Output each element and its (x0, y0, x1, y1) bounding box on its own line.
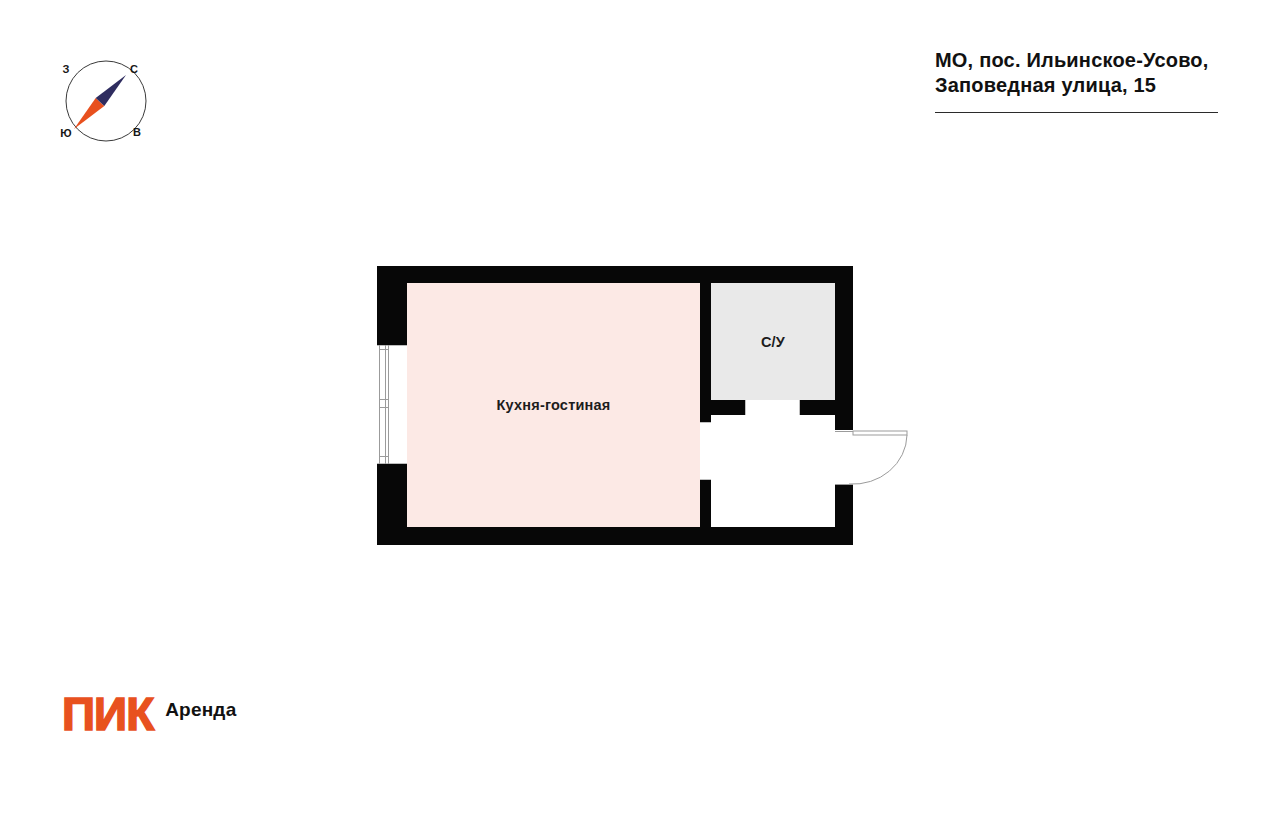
compass-needle-south-icon (74, 98, 104, 129)
window-frame-line (385, 345, 386, 464)
window-edge-line (377, 345, 407, 346)
pik-product-label: Аренда (165, 699, 236, 721)
door-leaf (853, 431, 907, 435)
window-edge-line (377, 463, 407, 464)
kitchen-doorway-opening (700, 422, 711, 480)
doorway-jamb-line (700, 422, 711, 423)
address-line-1: МО, пос. Ильинское-Усово, (935, 48, 1225, 73)
bathroom-doorway-opening (745, 400, 800, 415)
door-swing-arc (849, 435, 907, 484)
room-kitchen-living-label: Кухня-гостиная (497, 397, 611, 413)
compass-rose: З С Ю В (56, 51, 156, 151)
brand-footer: ПИК Аренда (62, 694, 236, 734)
window-frame-line (388, 345, 389, 464)
hallway-area (711, 415, 835, 527)
doorway-jamb-line (799, 400, 800, 415)
room-bathroom-label: С/У (761, 334, 785, 350)
window (377, 345, 407, 464)
address-divider (935, 112, 1218, 113)
doorway-jamb-line (745, 400, 746, 415)
room-bathroom: С/У (711, 283, 835, 400)
pik-logo: ПИК (62, 694, 153, 734)
entrance-door-swing (830, 425, 915, 495)
window-mullion-tick (379, 349, 389, 350)
room-kitchen-living: Кухня-гостиная (407, 283, 700, 527)
address-block: МО, пос. Ильинское-Усово, Заповедная ули… (935, 48, 1225, 113)
window-mullion-tick (379, 399, 389, 400)
floor-plan-page: З С Ю В МО, пос. Ильинское-Усово, Запове… (0, 0, 1280, 821)
compass-label-south: Ю (60, 127, 71, 139)
compass-label-north: С (130, 63, 138, 75)
compass-needle-north-icon (96, 75, 126, 106)
window-mullion-tick (379, 407, 389, 408)
compass-label-east: В (133, 126, 141, 138)
address-line-2: Заповедная улица, 15 (935, 73, 1225, 98)
floor-plan: Кухня-гостиная С/У (377, 266, 853, 545)
window-sill-line (379, 345, 380, 464)
window-mullion-tick (379, 456, 389, 457)
doorway-jamb-line (700, 479, 711, 480)
compass-label-west: З (63, 63, 70, 75)
